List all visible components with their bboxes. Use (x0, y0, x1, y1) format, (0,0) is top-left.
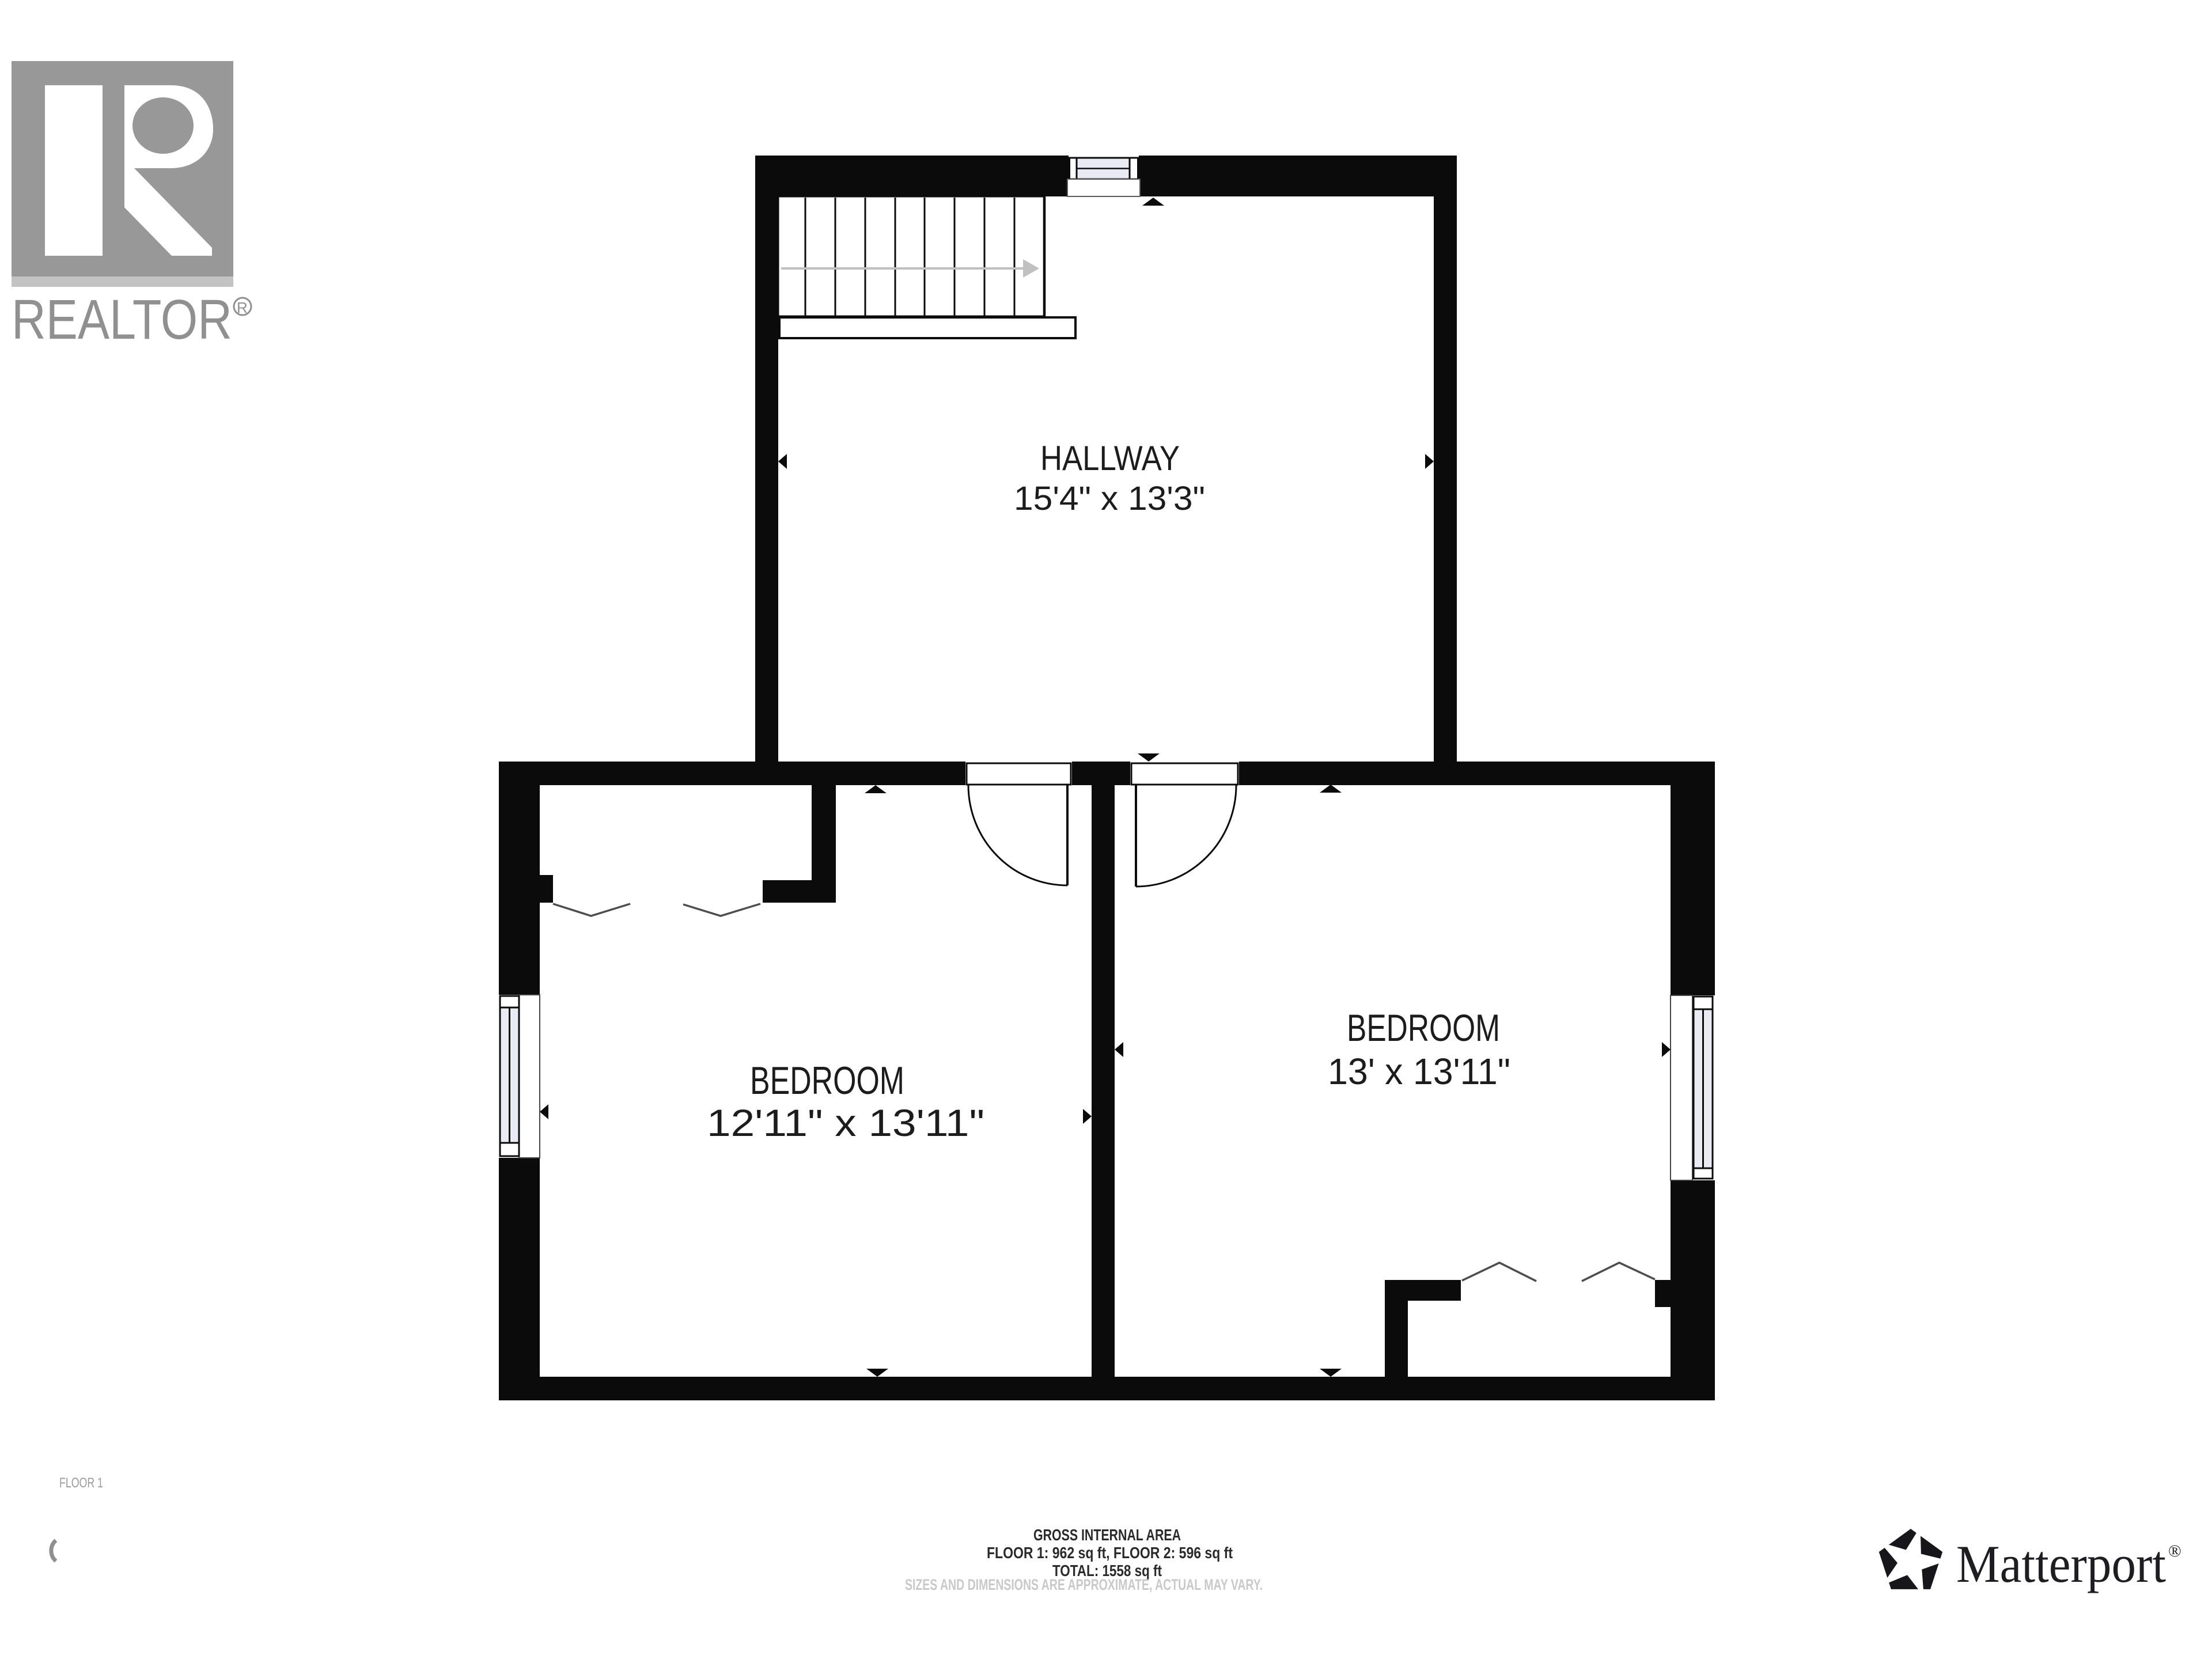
svg-text:BEDROOM: BEDROOM (1347, 1006, 1500, 1049)
svg-text:Matterport: Matterport (1956, 1535, 2166, 1593)
svg-text:FLOOR 1: 962 sq ft, FLOOR 2: 5: FLOOR 1: 962 sq ft, FLOOR 2: 596 sq ft (987, 1544, 1233, 1562)
svg-text:BEDROOM: BEDROOM (750, 1059, 904, 1103)
svg-text:REALTOR: REALTOR (12, 288, 232, 351)
svg-text:®: ® (2168, 1541, 2181, 1560)
svg-text:HALLWAY: HALLWAY (1040, 439, 1180, 478)
svg-text:SIZES AND DIMENSIONS ARE APPRO: SIZES AND DIMENSIONS ARE APPROXIMATE, AC… (905, 1576, 1263, 1593)
svg-text:FLOOR 1: FLOOR 1 (59, 1475, 103, 1491)
svg-text:15'4" x 13'3": 15'4" x 13'3" (1014, 480, 1205, 517)
svg-text:12'11" x 13'11": 12'11" x 13'11" (707, 1101, 984, 1144)
svg-text:13' x 13'11": 13' x 13'11" (1328, 1051, 1510, 1092)
svg-text:GROSS INTERNAL AREA: GROSS INTERNAL AREA (1033, 1526, 1181, 1544)
svg-text:R: R (237, 299, 248, 316)
